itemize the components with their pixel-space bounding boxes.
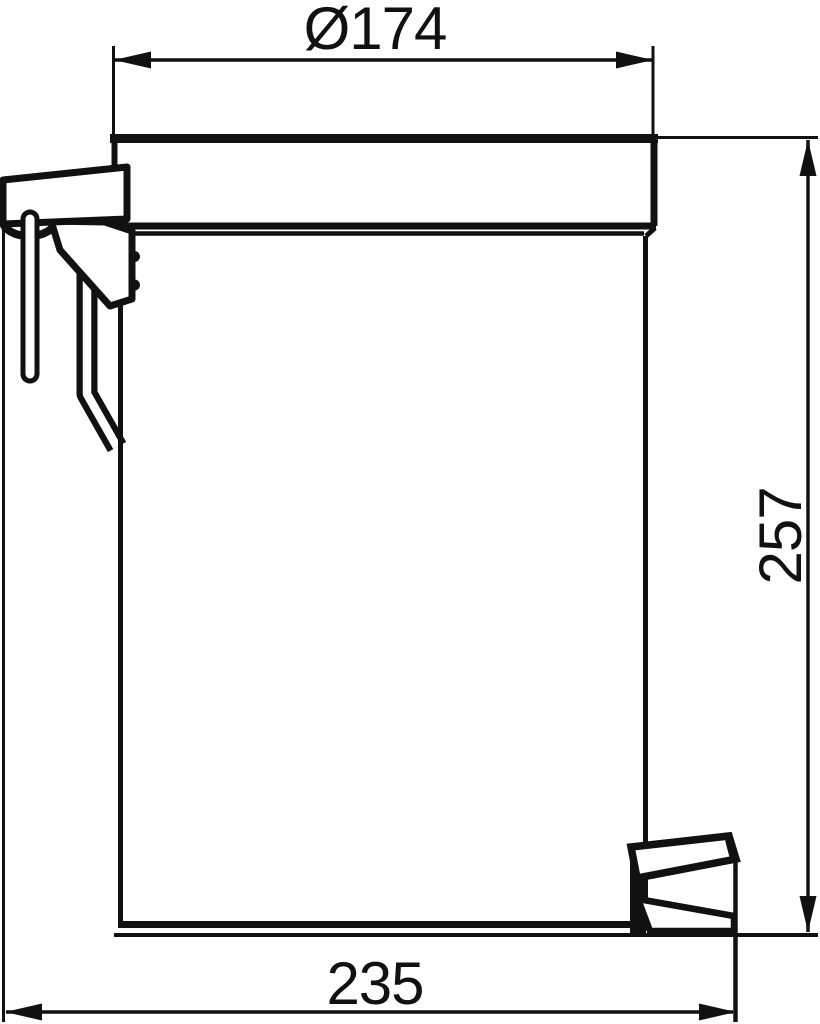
depth-label: 235 xyxy=(326,950,423,1017)
diameter-arrow-left-icon xyxy=(114,52,151,69)
dimension-diameter: Ø174 xyxy=(114,0,654,135)
depth-arrow-left-icon xyxy=(5,1004,42,1021)
height-arrow-bottom-icon xyxy=(800,896,817,932)
height-arrow-top-icon xyxy=(800,140,817,176)
hinge-pin-rod xyxy=(23,212,37,381)
diameter-label: Ø174 xyxy=(304,0,447,62)
pedal-plate xyxy=(631,836,736,878)
height-label: 257 xyxy=(747,487,814,584)
bin-outline xyxy=(110,138,818,935)
pedal-assembly xyxy=(630,836,736,935)
technical-drawing-canvas: Ø174 257 235 xyxy=(0,0,820,1024)
depth-arrow-right-icon xyxy=(699,1004,736,1021)
pedal-bin-drawing: Ø174 257 235 xyxy=(0,0,820,1024)
bracket-screw-icon xyxy=(129,280,140,291)
dimension-depth: 235 xyxy=(4,226,737,1022)
pedal-base-wedge xyxy=(638,899,734,931)
dimension-height: 257 xyxy=(658,138,818,933)
diameter-arrow-right-icon xyxy=(616,52,653,69)
bracket-screw-icon xyxy=(129,251,140,262)
